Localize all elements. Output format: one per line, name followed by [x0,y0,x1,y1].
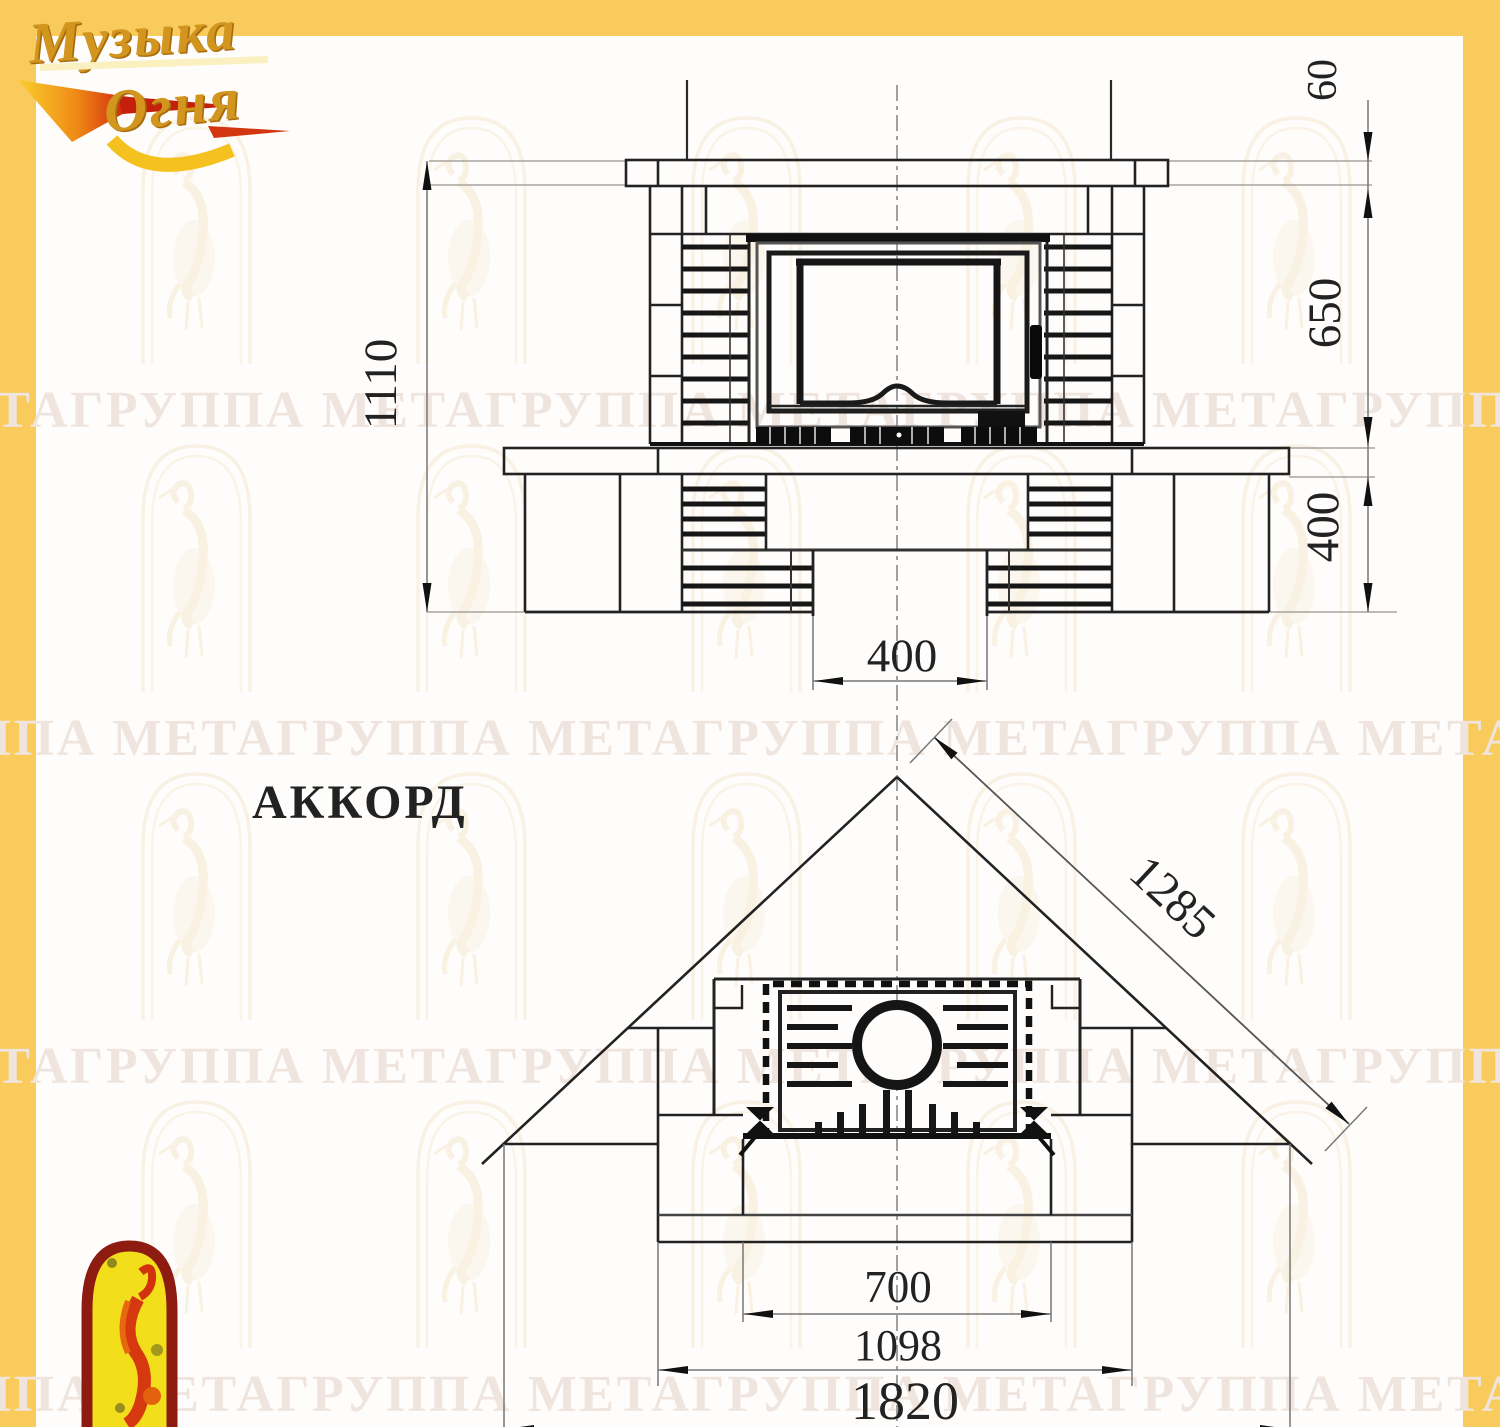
svg-text:АККОРД: АККОРД [252,776,468,829]
svg-text:60: 60 [1300,59,1346,101]
svg-text:ГРУППА МЕТАГРУППА МЕТАГРУППА М: ГРУППА МЕТАГРУППА МЕТАГРУППА МЕТАГРУППА … [0,1417,1500,1427]
svg-text:650: 650 [1299,278,1351,349]
svg-text:1110: 1110 [355,339,407,430]
svg-text:ГРУППА МЕТАГРУППА МЕТАГРУППА М: ГРУППА МЕТАГРУППА МЕТАГРУППА МЕТАГРУППА … [0,1038,1500,1095]
svg-text:400: 400 [1297,492,1349,563]
svg-text:1098: 1098 [854,1321,942,1370]
svg-text:700: 700 [864,1262,932,1312]
svg-text:ГРУППА МЕТАГРУППА МЕТАГРУППА М: ГРУППА МЕТАГРУППА МЕТАГРУППА МЕТАГРУППА … [0,1366,1500,1423]
svg-text:ГРУППА МЕТАГРУППА МЕТАГРУППА М: ГРУППА МЕТАГРУППА МЕТАГРУППА МЕТАГРУППА … [0,710,1500,767]
svg-text:1820: 1820 [851,1371,959,1427]
svg-text:400: 400 [867,630,938,682]
